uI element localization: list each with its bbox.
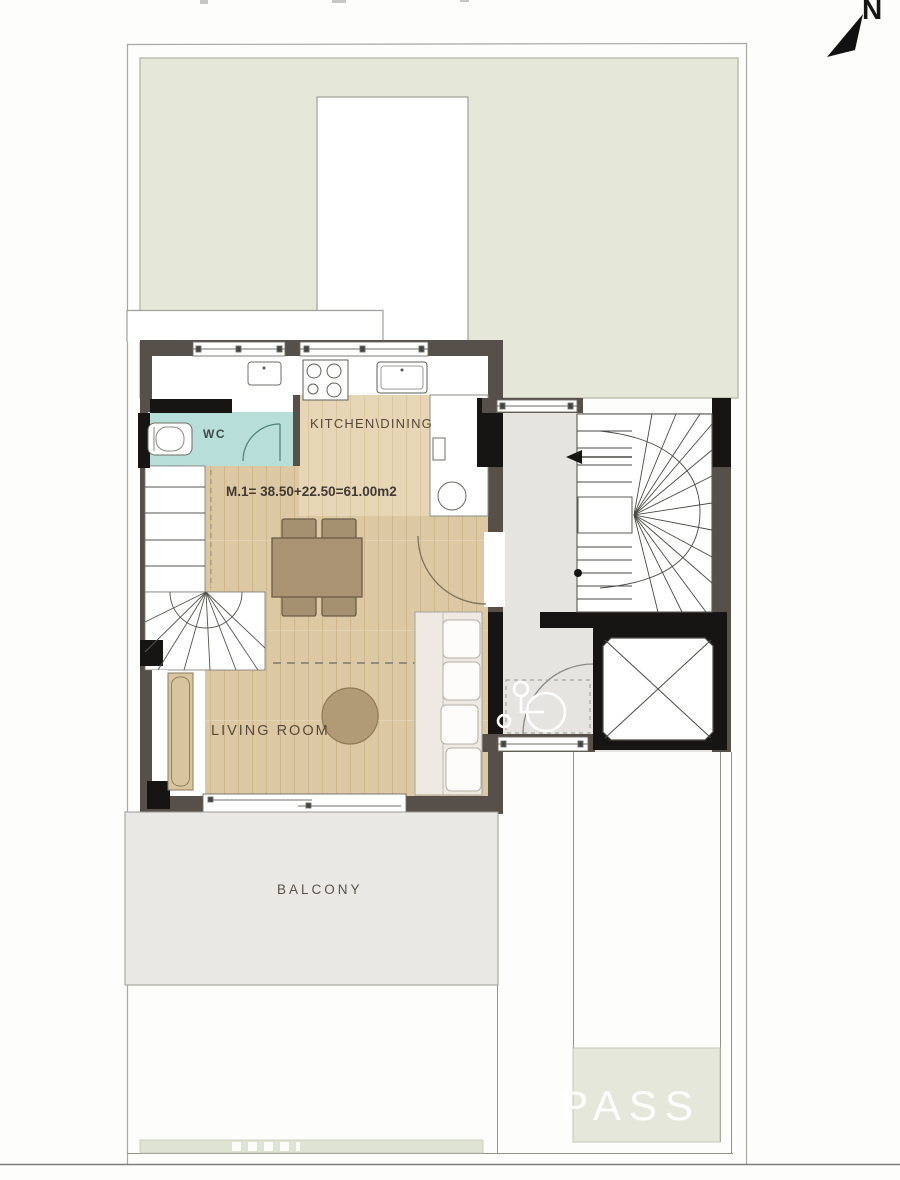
page-artifact [460, 0, 469, 2]
area-annotation: M.1= 38.50+22.50=61.00m2 [226, 484, 397, 499]
roadside-green-band [140, 1140, 483, 1153]
balcony-label: BALCONY [277, 882, 363, 897]
wc-label: WC [203, 427, 226, 441]
wall-recess [152, 670, 168, 796]
lobby-wall [540, 612, 727, 628]
sofa [415, 612, 482, 795]
toilet [148, 423, 192, 455]
page-artifact [332, 0, 346, 3]
sofa-cushion [441, 705, 478, 744]
lobby-window [498, 737, 588, 751]
watermark-text: PASS [560, 1082, 701, 1130]
entrance-opening [484, 532, 505, 607]
terrace-cutout [317, 97, 468, 341]
round-rug [322, 688, 378, 744]
tall-cabinet [168, 673, 193, 790]
living-room-label: LIVING ROOM [211, 723, 330, 739]
internal-stairs-flight [145, 466, 205, 592]
stair-start-dot [574, 569, 582, 577]
communal-staircase [566, 414, 712, 612]
sofa-cushion [446, 748, 481, 791]
wc-divider-wall [293, 395, 300, 466]
stove [303, 360, 348, 400]
page-artifact [200, 0, 208, 4]
north-label: N [862, 0, 882, 26]
balcony-area [125, 812, 498, 985]
stairwell-window [497, 400, 577, 412]
terrace-lower-strip [127, 311, 383, 343]
balcony-sliding-door [203, 794, 406, 812]
floor-plan-drawing [0, 0, 900, 1180]
corridor-right-column [712, 398, 731, 467]
kitchen-window-left [193, 342, 285, 356]
dining-table [272, 538, 362, 597]
north-arrow-icon [827, 14, 863, 57]
floor-plan-page: N WC KITCHEN\DINING M.1= 38.50+22.50=61.… [0, 0, 900, 1180]
elevator [593, 628, 727, 750]
kitchen-dining-label: KITCHEN\DINING [310, 416, 433, 431]
kitchen-window-right [300, 342, 428, 356]
kitchen-sink [377, 362, 427, 393]
sofa-cushion [443, 662, 480, 700]
bathroom-basin [248, 362, 281, 385]
sofa-cushion [443, 620, 480, 658]
